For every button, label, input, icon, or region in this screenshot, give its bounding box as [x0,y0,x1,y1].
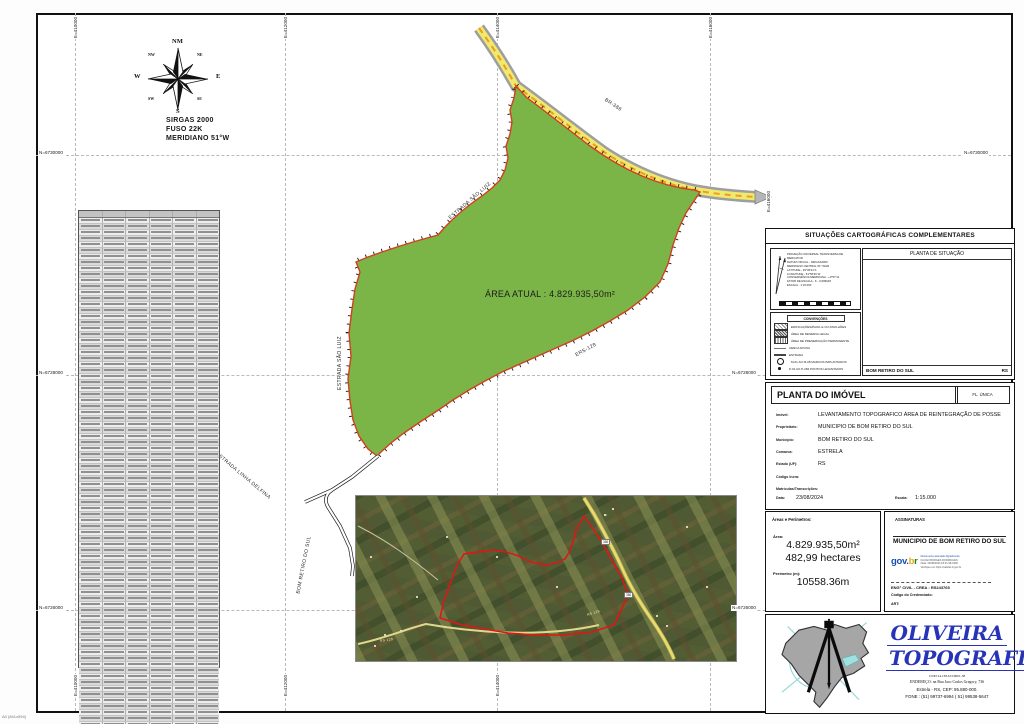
table-cell [79,602,103,607]
table-cell [126,656,150,661]
table-cell [103,356,127,361]
table-cell [150,530,174,535]
table-cell [79,710,103,715]
table-cell [173,368,197,373]
legend-label: ÁREA DE PRESERVAÇÃO PERMANENTE [791,339,849,343]
table-cell [197,458,220,463]
table-cell [103,290,127,295]
table-cell [197,488,220,493]
table-cell [173,362,197,367]
table-cell [173,326,197,331]
table-cell [173,332,197,337]
table-cell [126,542,150,547]
table-cell [150,380,174,385]
table-cell [150,566,174,571]
table-cell [150,374,174,379]
table-cell [197,218,220,223]
table-cell [150,554,174,559]
table-cell [173,434,197,439]
table-cell [173,254,197,259]
table-cell [103,326,127,331]
field-label: Estado (UF): [776,462,818,466]
table-cell [150,578,174,583]
table-cell [103,584,127,589]
table-cell [173,446,197,451]
table-cell [150,326,174,331]
table-cell [173,350,197,355]
satellite-property-outline [440,516,628,635]
table-cell [173,314,197,319]
table-cell [150,290,174,295]
table-cell [197,332,220,337]
table-cell [103,362,127,367]
table-cell [103,554,127,559]
table-cell [79,716,103,721]
route-shield-386-2: 386 [624,592,633,598]
situation-footer: BOM RETIRO DO SUL RS [863,365,1011,375]
table-cell [103,662,127,667]
table-cell [126,302,150,307]
table-cell [197,542,220,547]
table-cell [126,470,150,475]
engineer-line: ENG° CIVIL - CREA : RS243765 [891,582,991,590]
table-cell [173,242,197,247]
legend-item: ÁREA DE PRESERVAÇÃO PERMANENTE [771,337,860,344]
table-cell [197,524,220,529]
table-cell [150,428,174,433]
table-cell [126,284,150,289]
table-cell [126,278,150,283]
table-cell [126,494,150,499]
table-cell [197,254,220,259]
art-label: ART: [891,602,899,606]
table-cell [197,266,220,271]
table-cell [150,506,174,511]
projection-line: ESCALA - 1:15.000 [787,284,858,288]
satellite-overlay [356,496,736,661]
table-cell [126,572,150,577]
table-cell [197,512,220,517]
table-cell [126,290,150,295]
grid-label-bottom-1: E=410000 [73,674,78,697]
table-cell [173,512,197,517]
table-cell [150,572,174,577]
field-label: Imóvel: [776,413,818,417]
reserve-symbol-icon [774,330,788,337]
table-cell [173,704,197,709]
table-cell [103,590,127,595]
table-cell [126,320,150,325]
table-cell [103,446,127,451]
table-cell [79,242,103,247]
table-cell [126,380,150,385]
table-cell [79,386,103,391]
table-cell [173,290,197,295]
table-cell [150,608,174,613]
table-cell [197,620,220,625]
road-symbol-icon [774,354,786,356]
table-cell [103,536,127,541]
table-cell [197,464,220,469]
table-cell [79,434,103,439]
table-cell [126,566,150,571]
table-cell [126,422,150,427]
legend-item: ÁREA DE RESERVA LEGAL [771,330,860,337]
table-cell [197,548,220,553]
table-cell [150,356,174,361]
table-cell [103,572,127,577]
table-cell [150,320,174,325]
credential-label: Código do Credenciado: [891,593,933,597]
table-cell [173,296,197,301]
table-cell [79,542,103,547]
table-cell [126,698,150,703]
table-cell [79,626,103,631]
table-cell [126,614,150,619]
table-cell [126,488,150,493]
table-cell [79,278,103,283]
table-cell [150,476,174,481]
table-cell [103,416,127,421]
table-cell [173,224,197,229]
table-cell [103,302,127,307]
rs-state-logo-icon [770,617,888,711]
table-cell [79,530,103,535]
table-cell [197,686,220,691]
table-cell [126,398,150,403]
table-cell [79,578,103,583]
table-cell [150,584,174,589]
company-logo-box: OLIVEIRA TOPOGRAFIA CNPJ 24.138.613/0001… [765,614,1015,714]
table-cell [79,338,103,343]
table-cell [126,686,150,691]
table-cell [79,632,103,637]
table-cell [79,428,103,433]
table-cell [173,710,197,715]
table-cell [103,596,127,601]
table-cell [126,554,150,559]
conventions-box: CONVENÇÕES EDIFICAÇÕES/PAIOL E OU PAVILH… [770,312,861,376]
company-name-line-2: TOPOGRAFIA [886,646,1024,671]
table-cell [173,452,197,457]
table-cell [126,296,150,301]
govbr-gov: gov [891,556,906,567]
table-cell [79,494,103,499]
table-cell [126,368,150,373]
table-cell [126,386,150,391]
table-cell [103,230,127,235]
table-cell [197,356,220,361]
situation-title: PLANTA DE SITUAÇÃO [863,249,1011,260]
table-cell [197,650,220,655]
legend-label: P-01 AO P-284 PONTOS LEVANTADOS [789,367,843,371]
table-cell [126,668,150,673]
table-cell [103,710,127,715]
table-cell [150,668,174,673]
table-cell [79,374,103,379]
signatures-title: ASSINATURAS [885,512,1014,522]
table-cell [197,470,220,475]
table-cell [126,326,150,331]
table-cell [173,404,197,409]
table-cell [103,650,127,655]
company-city: Estrela - RS, CEP: 95.880-000. [886,686,1008,693]
table-cell [79,410,103,415]
table-cell [150,662,174,667]
table-cell [197,248,220,253]
company-name: OLIVEIRA TOPOGRAFIA [886,621,1008,671]
table-cell [150,422,174,427]
table-cell [150,338,174,343]
table-cell [126,416,150,421]
table-cell [126,536,150,541]
table-cell [79,644,103,649]
table-cell [150,626,174,631]
marker-symbol-icon [777,358,784,365]
company-phone: FONE : (51) 99737-6994 ( 51) 99538-5647 [886,693,1008,700]
table-cell [79,560,103,565]
field-label: Matrículas/Transcrições: [776,487,818,491]
table-cell [79,290,103,295]
table-cell [173,506,197,511]
table-cell [103,608,127,613]
table-cell [197,260,220,265]
table-cell [173,482,197,487]
area-hectares: 482,99 hectares [766,552,880,565]
table-cell [103,680,127,685]
point-symbol-icon [778,367,781,370]
table-cell [126,638,150,643]
table-cell [103,284,127,289]
grid-label-bottom-2: E=412000 [283,674,288,697]
table-cell [126,350,150,355]
table-cell [197,578,220,583]
table-cell [173,488,197,493]
table-cell [79,524,103,529]
table-cell [103,638,127,643]
table-cell [197,572,220,577]
table-cell [150,698,174,703]
property-field-row: Município:BOM RETIRO DO SUL [776,434,1008,446]
conventions-title: CONVENÇÕES [787,315,845,322]
table-cell [173,620,197,625]
table-cell [126,704,150,709]
table-cell [173,476,197,481]
area-field-label: Área: [766,522,880,539]
table-cell [126,452,150,457]
table-cell [173,548,197,553]
table-cell [197,272,220,277]
coordinate-table [78,210,220,668]
sheet-size-note: A0 (841x594) [2,714,26,719]
table-cell [173,428,197,433]
table-cell [79,620,103,625]
grid-label-right-1: N=6730000 [963,150,989,156]
table-cell [173,374,197,379]
field-value: MUNICIPIO DE BOM RETIRO DO SUL [818,424,913,430]
table-cell [103,338,127,343]
table-cell [103,386,127,391]
table-cell [103,278,127,283]
projection-info-box: PROJEÇÃO UNIVERSAL TRANSVERSA DE MERCATO… [770,248,861,310]
table-cell [79,296,103,301]
table-cell [150,314,174,319]
areas-perimeters-box: Áreas e Perímetros: Área: 4.829.935,50m²… [765,511,881,612]
field-label: Código Incra: [776,475,818,479]
grid-label-left-2: N=6728000 [38,370,64,376]
table-cell [103,548,127,553]
table-cell [197,398,220,403]
table-cell [103,422,127,427]
table-cell [150,350,174,355]
table-cell [103,602,127,607]
property-field-row: Comarca:ESTRELA [776,446,1008,458]
table-cell [103,314,127,319]
table-cell [173,470,197,475]
table-cell [173,464,197,469]
table-cell [150,434,174,439]
table-cell [79,272,103,277]
table-cell [150,236,174,241]
table-cell [197,302,220,307]
table-cell [103,626,127,631]
table-cell [79,320,103,325]
table-cell [150,632,174,637]
table-cell [79,446,103,451]
table-cell [103,392,127,397]
table-cell [126,644,150,649]
field-label: Município: [776,438,818,442]
property-field-row: Imóvel:LEVANTAMENTO TOPOGRAFICO ÁREA DE … [776,409,1008,421]
table-cell [126,230,150,235]
table-cell [79,284,103,289]
table-cell [126,680,150,685]
table-cell [79,686,103,691]
table-cell [197,716,220,721]
table-cell [197,500,220,505]
table-cell [197,608,220,613]
projection-text: PROJEÇÃO UNIVERSAL TRANSVERSA DE MERCATO… [787,253,858,288]
table-cell [103,254,127,259]
table-cell [79,614,103,619]
scale-value: 1:15.000 [915,495,936,501]
table-cell [79,350,103,355]
table-cell [103,704,127,709]
table-cell [79,488,103,493]
table-cell [173,416,197,421]
table-cell [79,422,103,427]
table-cell [150,404,174,409]
table-cell [173,716,197,721]
table-cell [150,248,174,253]
table-cell [126,392,150,397]
table-cell [103,644,127,649]
table-cell [173,668,197,673]
table-cell [197,296,220,301]
property-field-row: Estado (UF):RS [776,458,1008,470]
fence-symbol-icon [774,348,786,349]
graphic-scale-bar [779,301,851,306]
table-cell [150,482,174,487]
signature-line [893,536,1006,537]
table-cell [150,266,174,271]
table-cell [150,638,174,643]
table-cell [126,578,150,583]
table-cell [173,656,197,661]
table-cell [197,560,220,565]
table-cell [150,296,174,301]
situation-municipality: BOM RETIRO DO SUL [866,368,914,373]
table-cell [150,332,174,337]
table-cell [126,242,150,247]
table-cell [103,248,127,253]
table-cell [197,236,220,241]
table-cell [173,248,197,253]
table-cell [150,500,174,505]
table-cell [79,260,103,265]
table-cell [173,260,197,265]
table-cell [197,434,220,439]
table-cell [79,314,103,319]
table-cell [150,386,174,391]
table-cell [150,260,174,265]
table-cell [197,482,220,487]
table-cell [197,518,220,523]
table-cell [173,626,197,631]
table-cell [103,320,127,325]
table-cell [79,500,103,505]
table-cell [150,524,174,529]
table-cell [126,662,150,667]
field-label: Proprietário: [776,425,818,429]
legend-label: EDIFICAÇÕES/PAIOL E OU PAVILHÕES [791,325,846,329]
table-cell [103,674,127,679]
table-cell [103,488,127,493]
table-cell [126,674,150,679]
govbr-signature-stamp: gov.br Documento assinado digitalmente K… [891,551,999,575]
legend-item: M-01 AO M-08 MARCOS IMPLANTADOS [771,358,860,365]
table-cell [126,224,150,229]
signer-name: MUNICIPIO DE BOM RETIRO DO SUL [885,538,1014,545]
table-cell [79,572,103,577]
table-cell [150,284,174,289]
table-cell [126,590,150,595]
grid-label-top-3: E=414000 [495,16,500,39]
road-label-estrada-sao-luiz-w: ESTRADA SÃO LUIZ [337,331,343,395]
table-cell [150,560,174,565]
table-cell [103,512,127,517]
satellite-roads [358,498,674,659]
property-boundary [348,86,700,456]
table-cell [197,614,220,619]
table-cell [126,560,150,565]
table-cell [197,698,220,703]
table-cell [79,392,103,397]
table-cell [79,608,103,613]
stamp-line-4: Verifique em https://validar.iti.gov.br [921,566,962,570]
legend-item: EDIFICAÇÕES/PAIOL E OU PAVILHÕES [771,323,860,330]
table-cell [150,494,174,499]
table-cell [79,211,103,217]
table-cell [126,332,150,337]
table-cell [79,548,103,553]
table-cell [150,590,174,595]
table-cell [103,620,127,625]
table-cell [103,368,127,373]
table-cell [197,476,220,481]
table-cell [173,230,197,235]
legend-item: P-01 AO P-284 PONTOS LEVANTADOS [771,365,860,372]
